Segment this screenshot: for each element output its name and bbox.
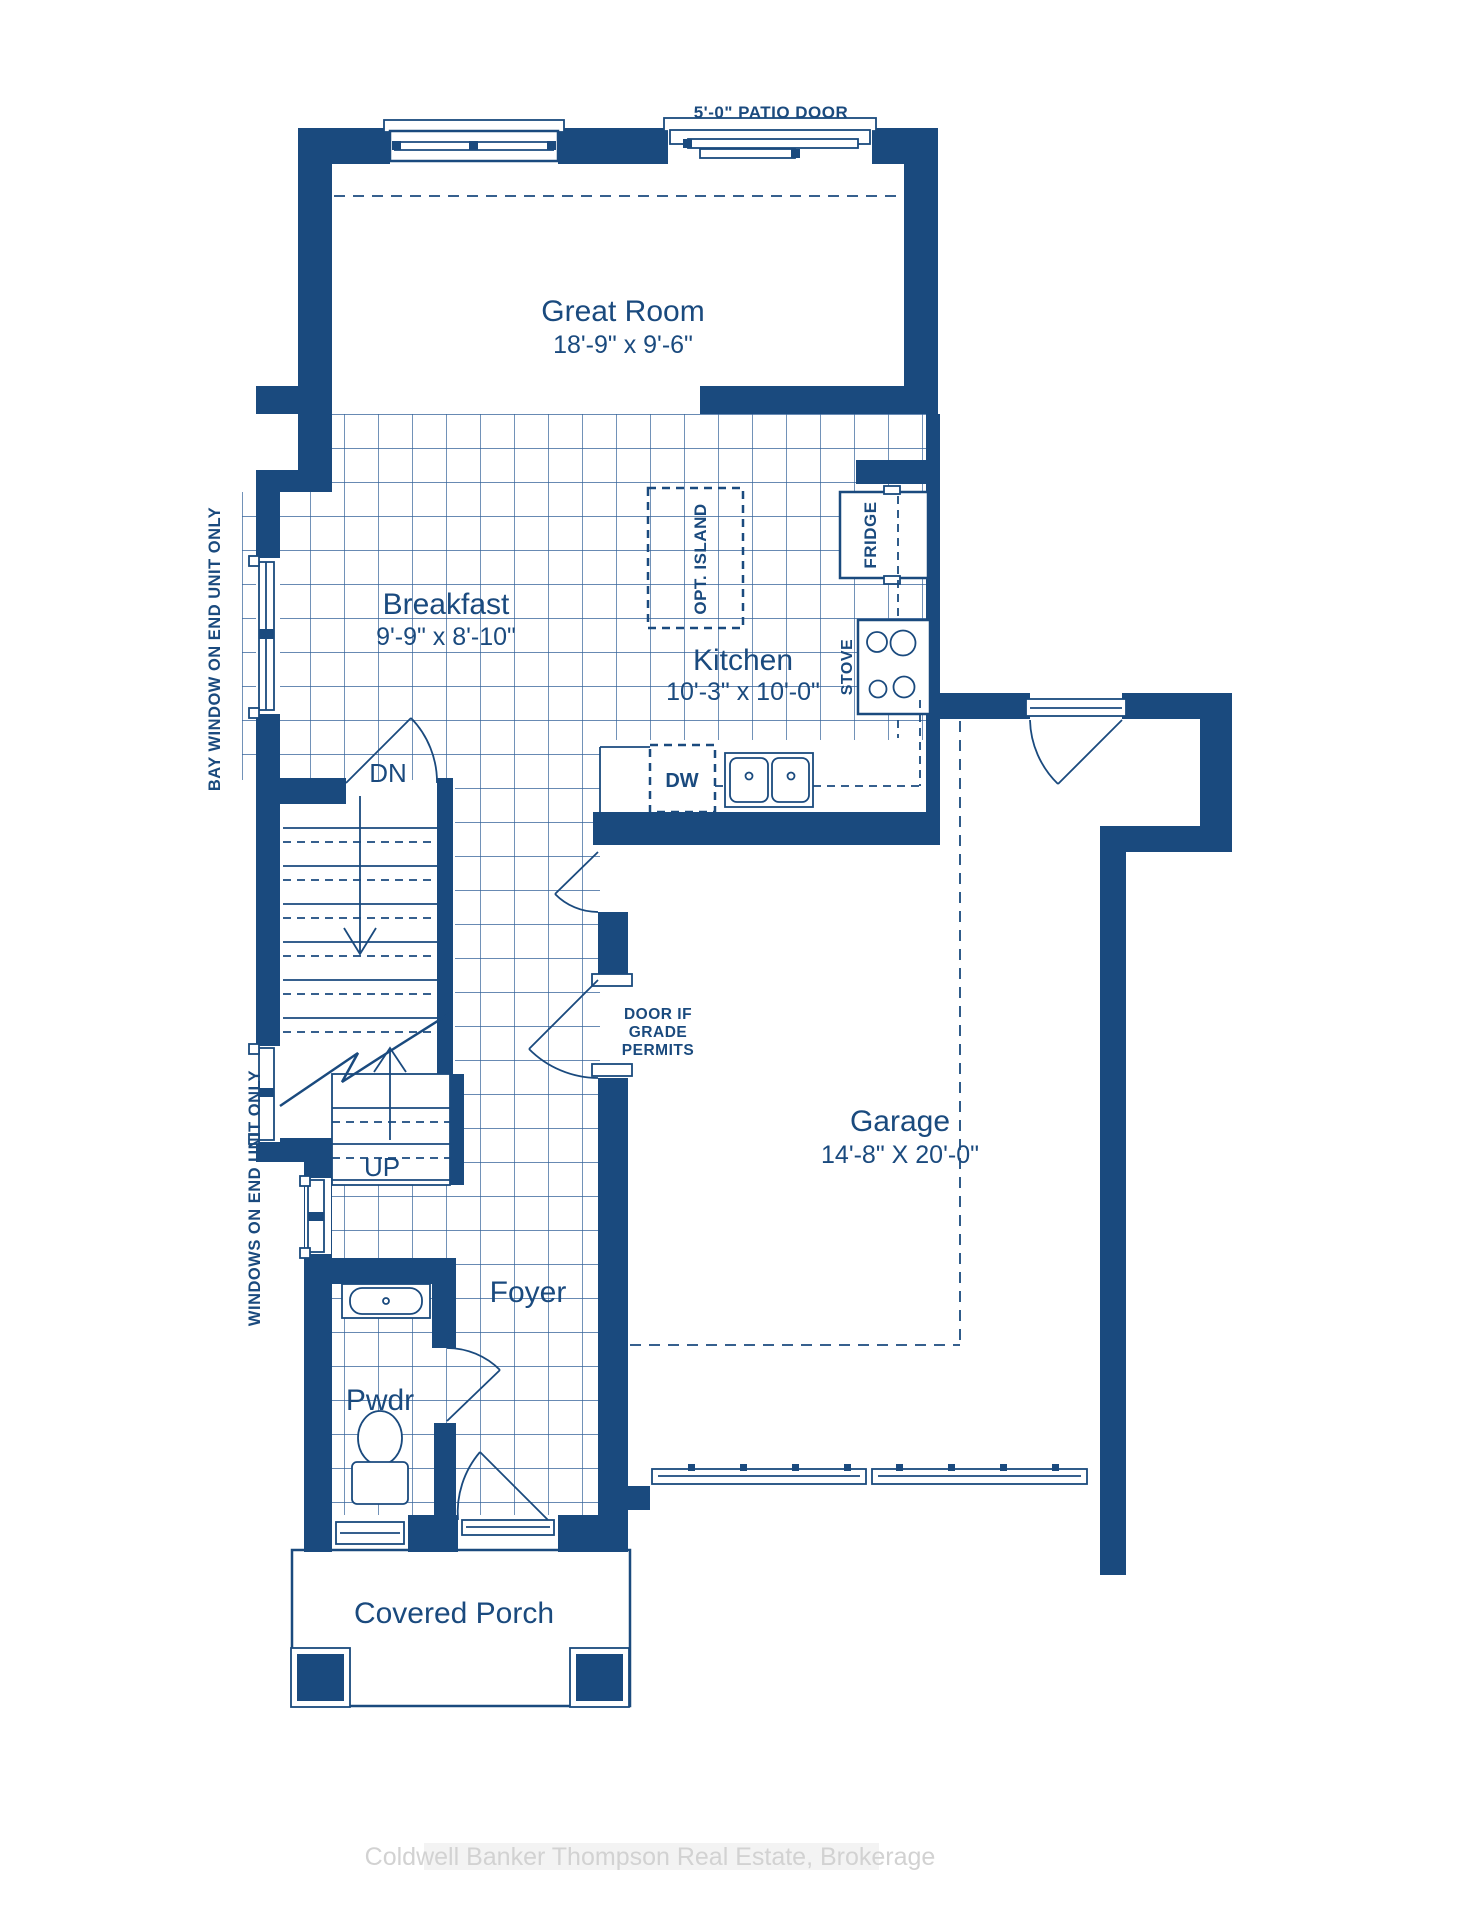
floor-plan: 5'-0" PATIO DOOR OPT. ISLAND FRIDGE xyxy=(0,0,1484,1920)
stairs-up-label: UP xyxy=(364,1152,400,1182)
grade-door-note-line1: DOOR IF xyxy=(624,1006,692,1023)
fridge-label: FRIDGE xyxy=(861,501,880,568)
kitchen-dims: 10'-3" x 10'-0" xyxy=(666,678,820,706)
kitchen-label: Kitchen xyxy=(693,644,793,677)
porch-post xyxy=(576,1654,623,1701)
breakfast-label: Breakfast xyxy=(383,588,510,621)
great-room-dims: 18'-9" x 9'-6" xyxy=(553,331,693,359)
patio-door xyxy=(664,118,876,164)
watermark: Coldwell Banker Thompson Real Estate, Br… xyxy=(365,1843,936,1871)
stairwell-floor xyxy=(278,780,454,1185)
covered-porch-label: Covered Porch xyxy=(354,1597,554,1630)
grade-door-note-line2: GRADE xyxy=(629,1024,687,1041)
floor-plan-page: 5'-0" PATIO DOOR OPT. ISLAND FRIDGE xyxy=(0,0,1484,1920)
tiled-floors xyxy=(242,414,936,1515)
powder-vanity-sink xyxy=(342,1284,430,1318)
garage-overhead-door xyxy=(652,1464,1087,1484)
garage-dims: 14'-8" X 20'-0" xyxy=(821,1141,979,1169)
fridge xyxy=(840,486,928,584)
end-windows-note: WINDOWS ON END UNIT ONLY xyxy=(246,1070,264,1326)
opt-island-label: OPT. ISLAND xyxy=(691,503,710,614)
porch-post xyxy=(297,1654,344,1701)
dishwasher-label: DW xyxy=(665,770,698,792)
stove xyxy=(858,620,930,714)
porch-wall-window xyxy=(332,1518,408,1548)
bay-window-note: BAY WINDOW ON END UNIT ONLY xyxy=(206,507,224,791)
grade-door-note-line3: PERMITS xyxy=(622,1042,694,1059)
kitchen-sink xyxy=(725,753,813,807)
breakfast-dims: 9'-9" x 8'-10" xyxy=(376,623,516,651)
garage-label: Garage xyxy=(850,1105,950,1138)
powder-room-label: Pwdr xyxy=(346,1384,414,1417)
watermark-text: Coldwell Banker Thompson Real Estate, Br… xyxy=(365,1843,936,1871)
patio-door-label: 5'-0" PATIO DOOR xyxy=(694,103,849,122)
stove-label: STOVE xyxy=(839,639,856,695)
great-room-window xyxy=(384,120,564,161)
garage-side-door xyxy=(1026,699,1126,784)
foyer-label: Foyer xyxy=(490,1276,567,1309)
great-room-label: Great Room xyxy=(541,295,704,328)
stairs-down-label: DN xyxy=(369,758,407,788)
